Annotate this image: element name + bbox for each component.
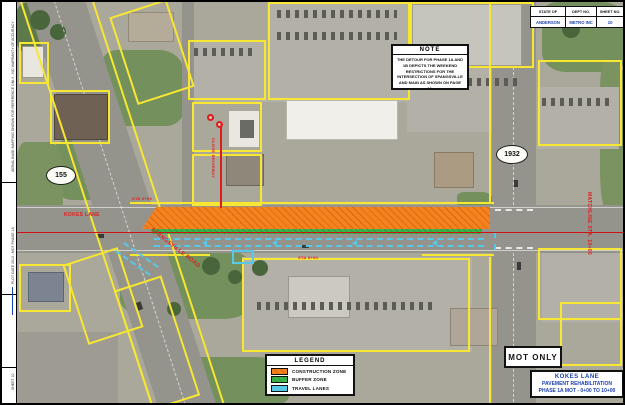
travel-direction-arrow-icon bbox=[352, 240, 357, 246]
stamp-value: 10 bbox=[597, 17, 623, 27]
road-center-line bbox=[513, 253, 514, 405]
travel-direction-arrow-icon bbox=[432, 240, 437, 246]
tree-icon bbox=[228, 270, 242, 284]
sheet-margin: AERIAL BASE MAPPING SHOWN FOR REFERENCE … bbox=[2, 2, 17, 405]
row-line bbox=[489, 257, 491, 405]
travel-lanes-swatch bbox=[271, 385, 288, 392]
plan-sheet: CLOSE DRIVEWAY KOKES LANE SPANGSVILLE RO… bbox=[0, 0, 625, 405]
tree-icon bbox=[30, 10, 50, 30]
car bbox=[514, 180, 518, 187]
margin-divider bbox=[2, 294, 17, 295]
parcel-line bbox=[192, 154, 262, 206]
matchline-label: MATCHLINE STA. 10+00 bbox=[586, 192, 592, 276]
work-island-outline bbox=[232, 250, 254, 264]
stamp-header: SHEET NO. bbox=[597, 7, 623, 17]
driveway-closure-label: CLOSE DRIVEWAY bbox=[211, 138, 216, 208]
travel-direction-arrow-icon bbox=[272, 240, 277, 246]
driveway-closure-line bbox=[220, 122, 222, 208]
crosswalk bbox=[495, 247, 533, 249]
parcel-line bbox=[268, 2, 410, 100]
barricade-icon bbox=[207, 114, 214, 121]
construction-zone-overlay bbox=[142, 207, 490, 229]
barricade-icon bbox=[216, 121, 223, 128]
stamp-value: ANDERSON bbox=[531, 17, 566, 27]
legend-item-label: TRAVEL LANES bbox=[292, 386, 329, 391]
building bbox=[286, 100, 398, 140]
main-road-label: KOKES LANE bbox=[64, 212, 100, 218]
note-title: NOTE bbox=[393, 46, 467, 55]
legend-title: LEGEND bbox=[267, 356, 353, 366]
phase-stationing: PHASE 1A MOT - 0+00 TO 10+00 bbox=[539, 388, 616, 394]
margin-divider bbox=[2, 182, 17, 183]
stamp-value: METRO INC bbox=[566, 17, 597, 27]
note-body: THE DETOUR FOR PHASE 1A AND 1B DEPICTS T… bbox=[393, 55, 467, 94]
construction-zone-swatch bbox=[271, 368, 288, 375]
row-line bbox=[489, 2, 491, 202]
margin-file-stamp: SHEET 10 bbox=[11, 374, 15, 390]
stamp-header: STATE OF bbox=[531, 7, 566, 17]
parcel-line bbox=[560, 302, 622, 366]
stamp-header: DEPT NO. bbox=[566, 7, 597, 17]
note-box: NOTE THE DETOUR FOR PHASE 1A AND 1B DEPI… bbox=[391, 44, 469, 90]
legend-item: BUFFER ZONE bbox=[267, 375, 353, 384]
margin-disclaimer: AERIAL BASE MAPPING SHOWN FOR REFERENCE … bbox=[11, 21, 15, 172]
survey-centerline bbox=[17, 232, 624, 233]
row-line bbox=[130, 202, 494, 204]
margin-blue-mark bbox=[12, 287, 13, 315]
buffer-zone-swatch bbox=[271, 376, 288, 383]
travel-direction-arrow-icon bbox=[202, 240, 207, 246]
parcel-line bbox=[192, 102, 262, 152]
margin-plot-stamp: PLOT DATE 2013 - MOT PHASE 1A bbox=[11, 227, 15, 284]
crosswalk bbox=[495, 209, 533, 211]
legend-item-label: CONSTRUCTION ZONE bbox=[292, 369, 346, 374]
row-line bbox=[422, 254, 494, 256]
project-type: PAVEMENT REHABILITATION bbox=[542, 381, 612, 387]
station-label: STA 5+00 bbox=[298, 255, 318, 260]
parking-lot bbox=[18, 332, 118, 405]
stamp-table: STATE OF DEPT NO. SHEET NO. ANDERSON MET… bbox=[530, 6, 624, 28]
route-shield-1932: 1932 bbox=[496, 145, 528, 164]
parcel-line bbox=[242, 258, 470, 352]
legend-item: TRAVEL LANES bbox=[267, 383, 353, 392]
building bbox=[434, 152, 474, 188]
route-shield-155: 155 bbox=[46, 166, 76, 185]
title-block: KOKES LANE PAVEMENT REHABILITATION PHASE… bbox=[530, 370, 624, 398]
parcel-line bbox=[188, 40, 266, 100]
legend-item-label: BUFFER ZONE bbox=[292, 377, 327, 382]
margin-divider bbox=[2, 367, 17, 368]
parcel-line bbox=[19, 264, 71, 312]
legend-item: CONSTRUCTION ZONE bbox=[267, 366, 353, 375]
travel-lane-line bbox=[494, 232, 496, 250]
station-label: STA 0+00 bbox=[132, 196, 152, 201]
parcel-line bbox=[538, 60, 622, 146]
mot-only-box: MOT ONLY bbox=[504, 346, 562, 368]
legend-box: LEGEND CONSTRUCTION ZONE BUFFER ZONE TRA… bbox=[265, 354, 355, 396]
project-name: KOKES LANE bbox=[555, 374, 599, 380]
car bbox=[517, 262, 521, 270]
